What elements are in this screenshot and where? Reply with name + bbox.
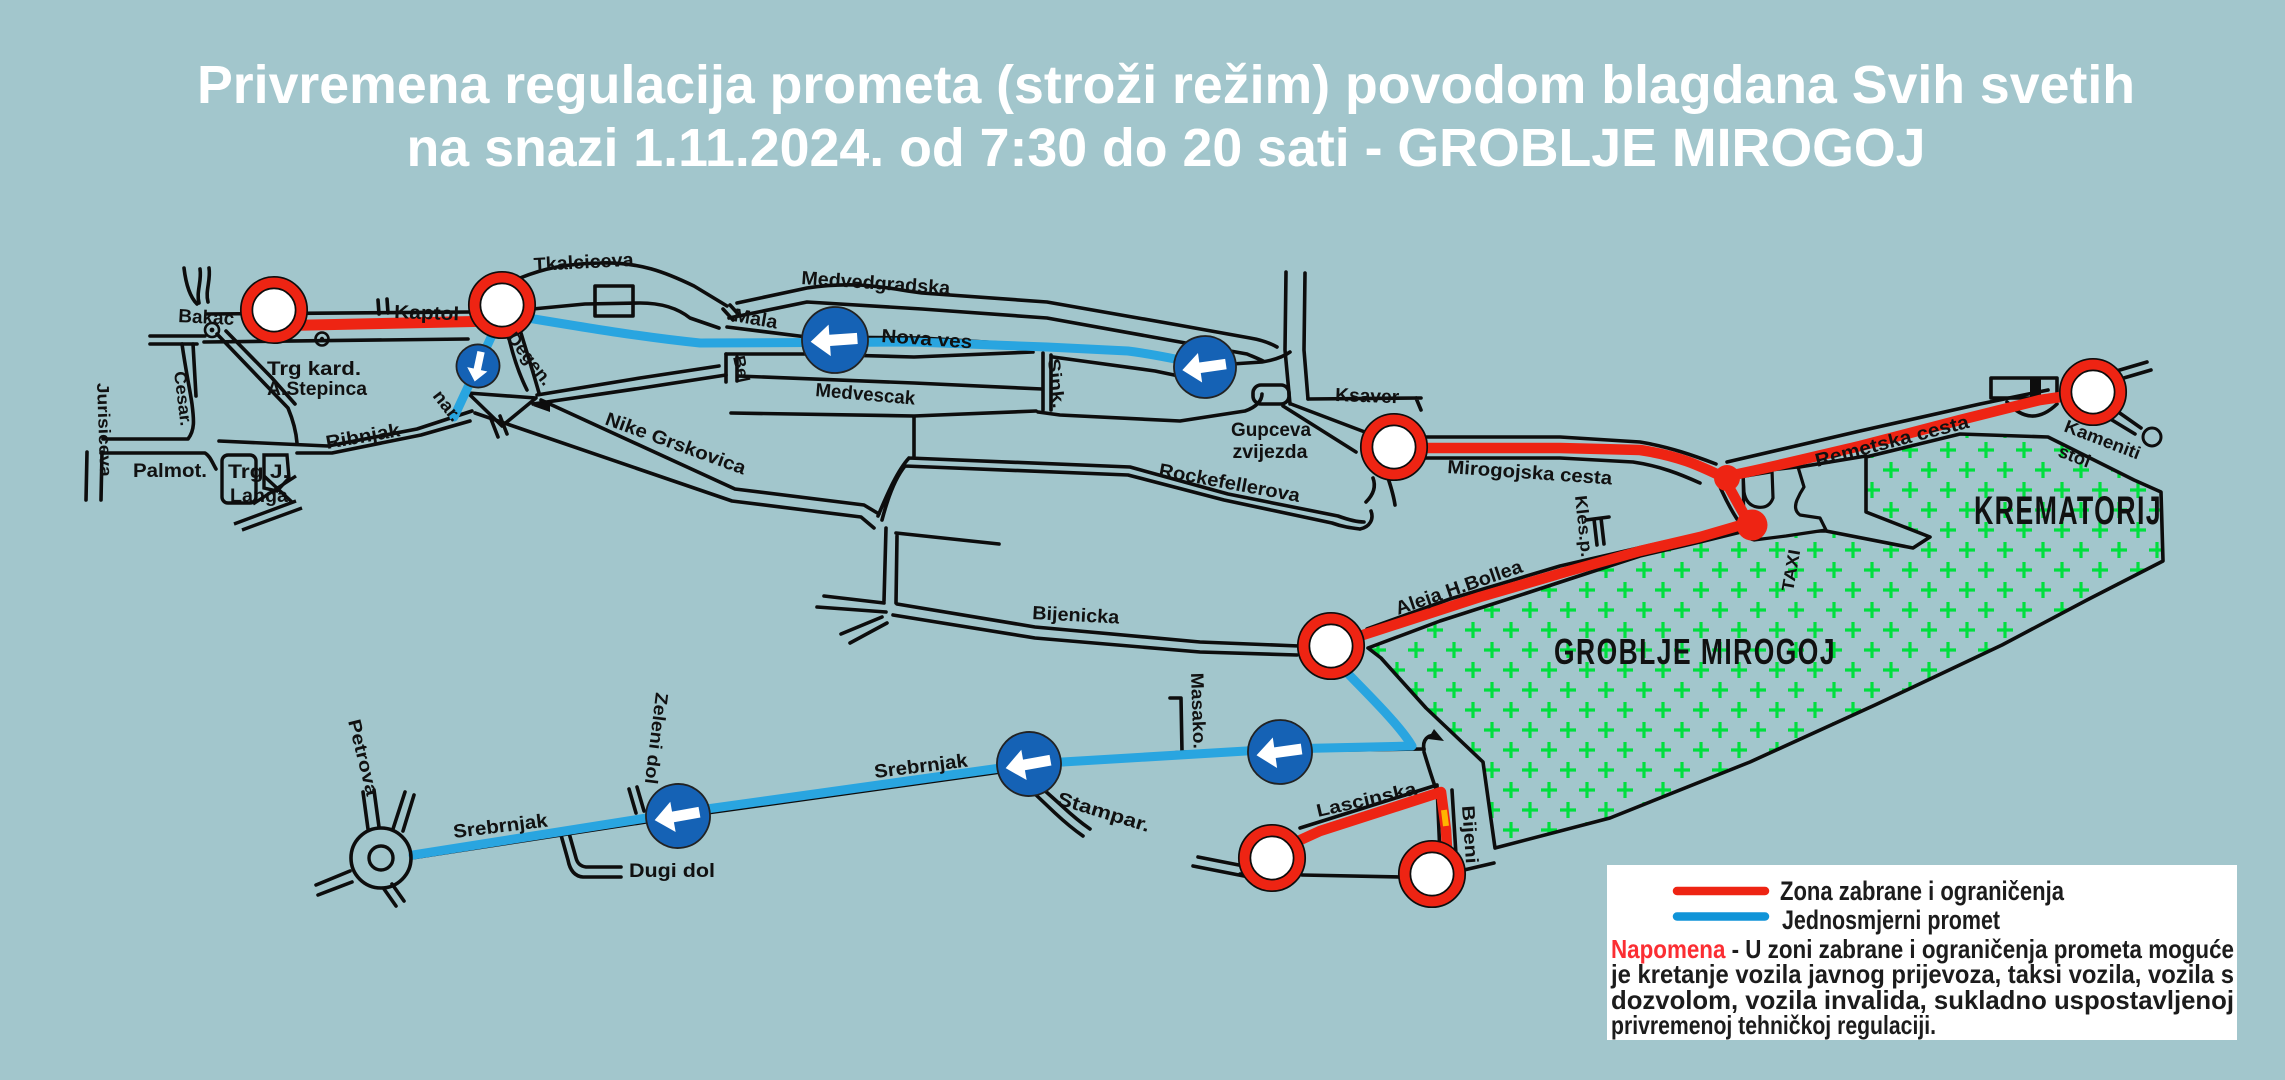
svg-text:Ksaver: Ksaver [1335, 385, 1400, 408]
svg-text:Jurisiceva: Jurisiceva [93, 382, 115, 477]
svg-text:Trg J.: Trg J. [228, 462, 289, 483]
svg-text:Masako.: Masako. [1187, 672, 1210, 749]
svg-text:A.Stepinca: A.Stepinca [267, 379, 367, 400]
svg-text:GROBLJE MIROGOJ: GROBLJE MIROGOJ [1554, 631, 1836, 672]
svg-text:Bijeni: Bijeni [1458, 805, 1482, 864]
svg-text:Zona zabrane i ograničenja: Zona zabrane i ograničenja [1780, 876, 2065, 906]
svg-text:Palmot.: Palmot. [133, 461, 207, 482]
svg-text:Dugi dol: Dugi dol [629, 861, 715, 882]
svg-text:Bakac: Bakac [178, 306, 235, 330]
svg-text:privremenoj tehničkoj regulaci: privremenoj tehničkoj regulaciji. [1611, 1010, 1936, 1040]
svg-text:na snazi 1.11.2024. od 7:30 d: na snazi 1.11.2024. od 7:30 do 20 sati -… [407, 118, 1926, 178]
svg-text:Trg kard.: Trg kard. [267, 359, 361, 380]
svg-text:zvijezda: zvijezda [1233, 442, 1308, 463]
svg-text:Gupceva: Gupceva [1231, 420, 1311, 441]
svg-text:Kaptol: Kaptol [394, 302, 460, 325]
svg-text:Privremena regulacija prometa: Privremena regulacija prometa (stroži re… [197, 55, 2135, 115]
svg-text:KREMATORIJ: KREMATORIJ [1974, 489, 2162, 533]
svg-text:Jednosmjerni promet: Jednosmjerni promet [1782, 905, 2000, 935]
